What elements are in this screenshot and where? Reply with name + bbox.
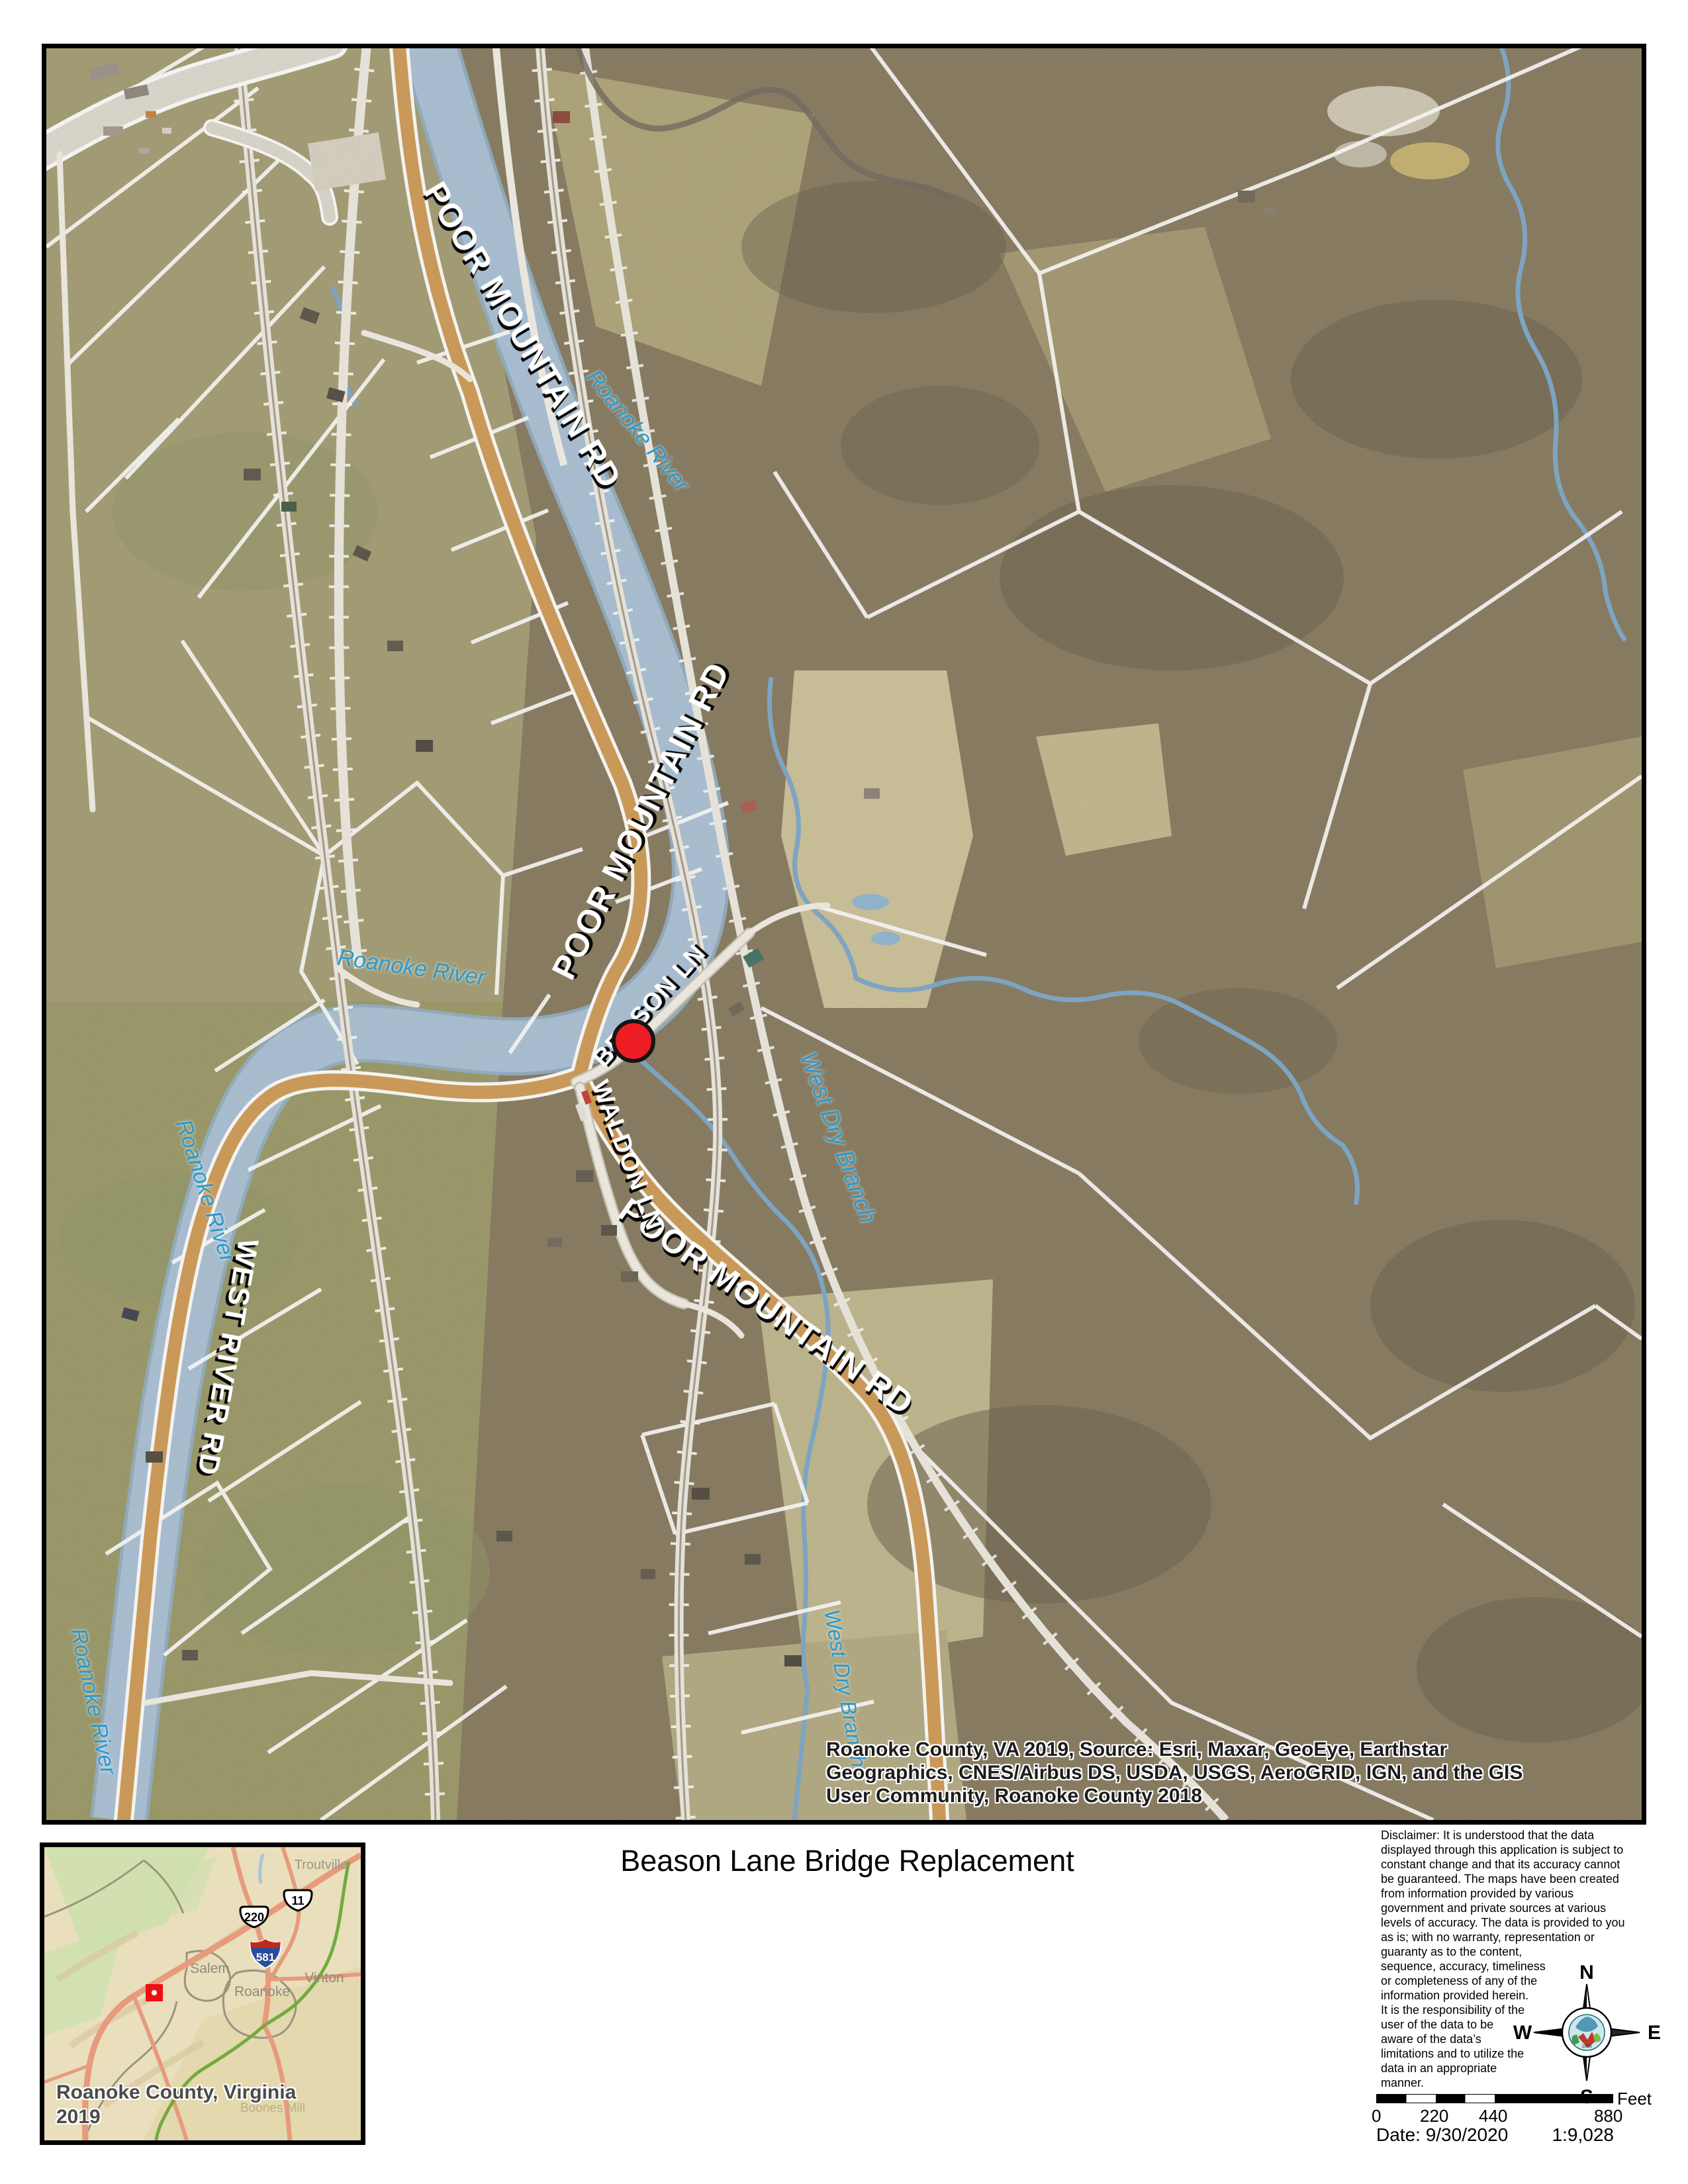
county-seal: 1838 — [1562, 2008, 1611, 2057]
scale-bar — [1376, 2094, 1613, 2103]
inset-label-troutville: Troutville — [295, 1858, 348, 1872]
page-title: Beason Lane Bridge Replacement — [424, 1844, 1271, 1878]
inset-label-vinton: Vinton — [305, 1970, 344, 1985]
aerial-imagery: Roanoke River Roanoke River Roanoke Rive… — [46, 48, 1642, 1820]
main-map: Roanoke River Roanoke River Roanoke Rive… — [42, 44, 1646, 1825]
inset-location-marker — [146, 1984, 163, 2001]
svg-text:581: 581 — [256, 1951, 275, 1964]
compass-west-label: W — [1513, 2022, 1532, 2044]
compass-rose: 1838 N S W E — [1509, 1964, 1668, 2107]
scale-tick-880: 880 — [1594, 2106, 1622, 2126]
inset-label-salem: Salem — [190, 1961, 230, 1976]
photo-grain — [46, 48, 1642, 1820]
date-label: Date: 9/30/2020 — [1376, 2124, 1508, 2146]
compass-east-label: E — [1648, 2022, 1661, 2044]
scale-tick-440: 440 — [1479, 2106, 1507, 2126]
svg-text:1838: 1838 — [1581, 2044, 1592, 2049]
inset-label-roanoke: Roanoke — [234, 1984, 290, 1999]
bridge-location-marker — [614, 1021, 653, 1061]
compass-north-label: N — [1579, 1964, 1594, 1983]
svg-text:220: 220 — [244, 1911, 264, 1924]
scale-ratio-label: 1:9,028 — [1536, 2124, 1614, 2146]
svg-text:11: 11 — [291, 1894, 304, 1907]
scale-tick-0: 0 — [1372, 2106, 1381, 2126]
scale-tick-220: 220 — [1420, 2106, 1448, 2126]
locator-inset-map: Troutville Salem Roanoke Vinton Boones M… — [40, 1843, 365, 2145]
inset-caption: Roanoke County, Virginia 2019 — [56, 2080, 296, 2129]
map-attribution: Roanoke County, VA 2019, Source: Esri, M… — [826, 1738, 1607, 1807]
